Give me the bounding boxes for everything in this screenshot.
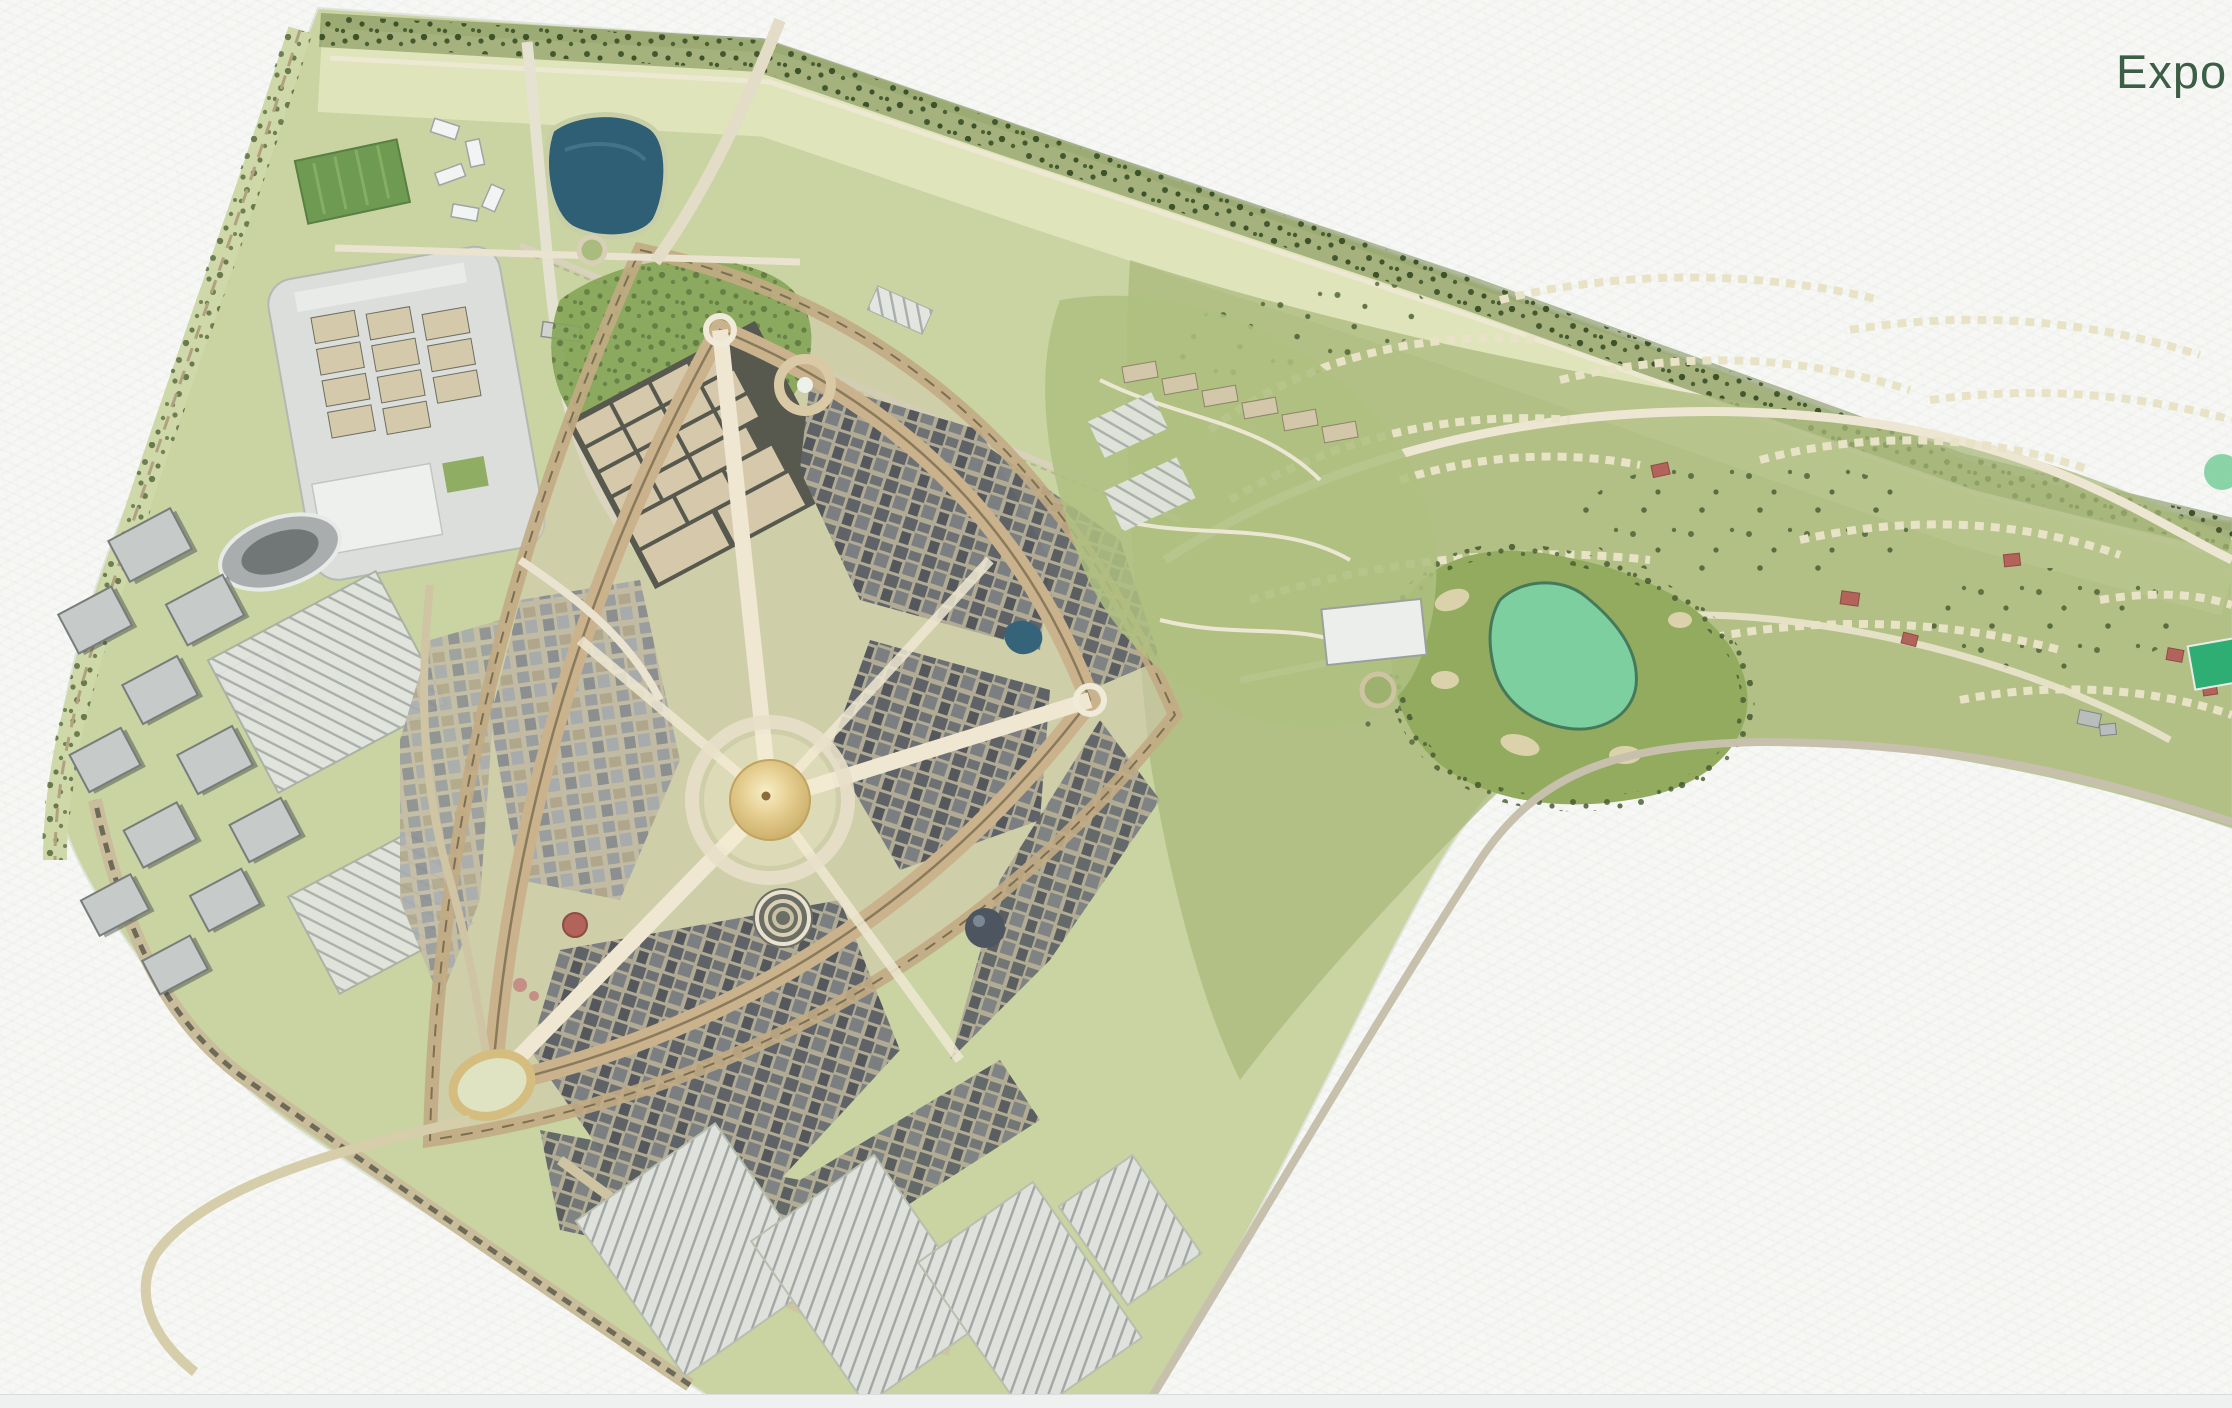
waist-white-building [1321, 599, 1426, 665]
north-roundabout [579, 237, 605, 263]
masterplan-map [0, 0, 2232, 1408]
red-dome-pavilion [563, 913, 587, 937]
al-wasl-dome [730, 760, 810, 840]
page-bottom-strip [0, 1394, 2232, 1408]
masterplan-heading: Expo [2116, 44, 2227, 99]
dome-oculus [762, 792, 771, 801]
dark-pavilion [965, 908, 1005, 948]
far-right-green [2204, 454, 2232, 490]
masterplan-svg [0, 0, 2232, 1408]
park-roundabout [1362, 674, 1394, 706]
garden-ring-core [797, 377, 813, 393]
lake [546, 115, 665, 237]
dark-pavilion-highlight [973, 915, 985, 927]
amphitheater [753, 888, 813, 948]
